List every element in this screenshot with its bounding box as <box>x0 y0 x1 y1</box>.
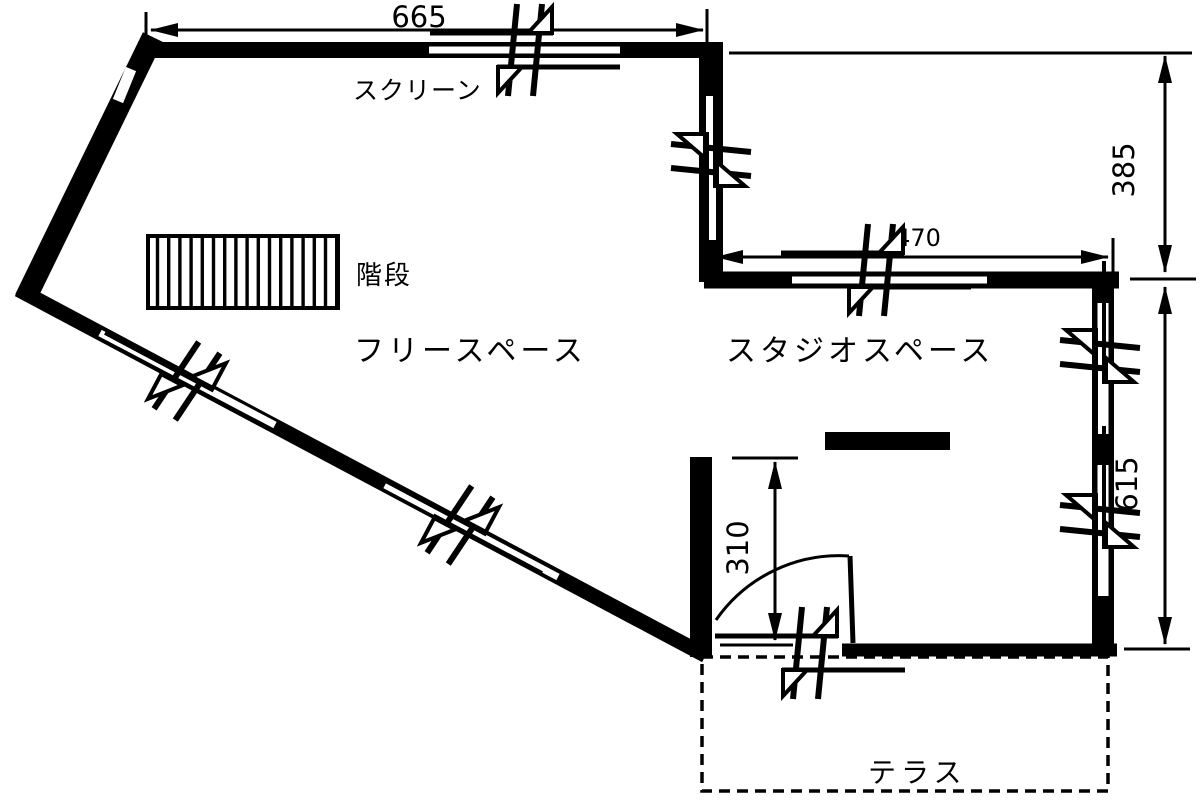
dimension-right-upper-value: 385 <box>1107 142 1141 197</box>
stairs <box>148 236 338 308</box>
floor-plan-canvas: 665 385 470 615 310 <box>0 0 1200 800</box>
floor-plan: 665 385 470 615 310 <box>0 0 1200 800</box>
dimension-top-width-value: 665 <box>391 0 446 34</box>
dimension-entry-opening-value: 310 <box>721 520 755 575</box>
dimension-right-lower-value: 615 <box>1110 456 1144 511</box>
stairs-hatch <box>148 236 338 308</box>
swing-door-leaf <box>850 556 853 643</box>
room-label-terrace: テラス <box>868 756 966 789</box>
room-label-studio-space: スタジオスペース <box>726 334 994 369</box>
plan-background <box>0 0 1200 800</box>
screen-label: スクリーン <box>353 76 482 105</box>
room-label-free-space: フリースペース <box>354 334 587 369</box>
stairs-label: 階段 <box>356 261 412 291</box>
counter-block <box>825 432 950 450</box>
